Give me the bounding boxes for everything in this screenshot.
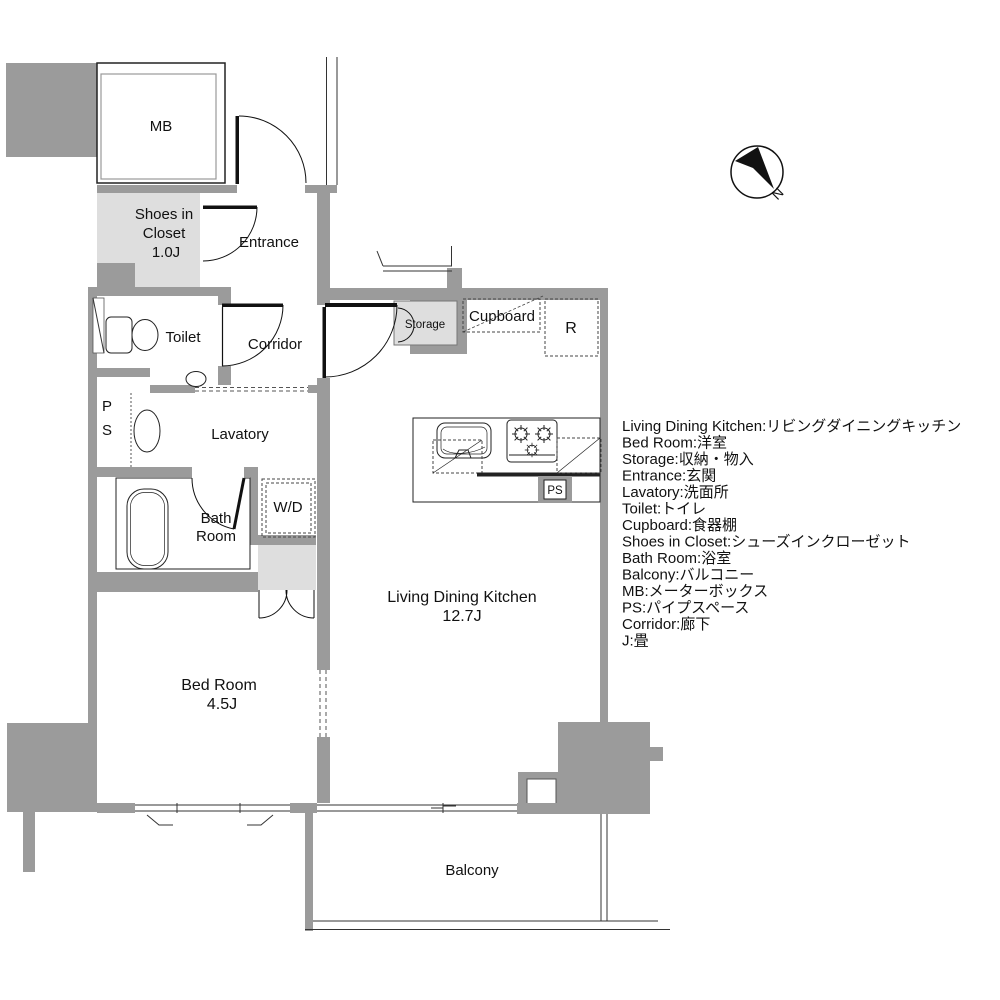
toilet-label: Toilet [165, 329, 201, 346]
wall-segment [317, 378, 330, 393]
legend-line: Toilet:トイレ [622, 501, 706, 518]
shoes-closet-label-3: 1.0J [152, 244, 180, 261]
vent-line [377, 251, 383, 266]
vanity-sink [134, 410, 160, 452]
shoes-closet-door-leaf [203, 206, 257, 210]
wall-segment [150, 385, 195, 393]
bedroom-label-1: Bed Room [181, 677, 257, 694]
floor-plan: N MB Shoes in Closet 1.0J Entrance Toile… [0, 0, 1000, 1000]
balcony-label: Balcony [445, 862, 499, 879]
window-shutter-mark [147, 815, 173, 825]
bedroom-closet-area [258, 545, 316, 590]
entrance-door-leaf [236, 116, 240, 184]
toilet-bowl [132, 320, 158, 351]
wall-segment [517, 803, 560, 814]
wall-segment [317, 393, 330, 670]
legend-line: Bed Room:洋室 [622, 435, 727, 452]
wall-segment [650, 747, 663, 761]
bathtub [127, 489, 168, 569]
wall-segment [308, 385, 317, 393]
corridor-label: Corridor [248, 336, 302, 353]
wall-segment [244, 467, 258, 477]
legend-line: PS:パイプスペース [622, 600, 749, 617]
ldk-door-leaf [325, 303, 397, 307]
wall-segment [250, 477, 258, 545]
ldk-label-1: Living Dining Kitchen [387, 589, 536, 606]
legend-line: J:畳 [622, 633, 649, 650]
wall-segment [88, 572, 258, 592]
legend-line: Balcony:バルコニー [622, 567, 754, 584]
toilet-tank [106, 317, 132, 353]
balcony-side-wall [305, 813, 313, 931]
legend-line: Shoes in Closet:シューズインクローゼット [622, 534, 910, 551]
wall-segment [317, 185, 330, 305]
wall-niche [527, 779, 556, 806]
wall-segment [600, 288, 608, 722]
wall-segment [97, 803, 135, 813]
legend-line: Storage:収納・物入 [622, 451, 754, 468]
wall-segment [7, 723, 97, 872]
shoes-closet-label-1: Shoes in [135, 206, 193, 223]
wall-segment [290, 803, 317, 813]
hand-sink [186, 372, 206, 387]
ps-left-label-2: S [102, 422, 112, 439]
legend: Living Dining Kitchen:リビングダイニングキッチン Bed … [622, 418, 961, 650]
legend-line: Living Dining Kitchen:リビングダイニングキッチン [622, 418, 961, 435]
bedroom-label-2: 4.5J [207, 696, 237, 713]
wall-segment [97, 263, 135, 290]
cupboard-label: Cupboard [469, 308, 535, 325]
column-block [558, 722, 650, 814]
bath-door-leaf [234, 478, 244, 529]
ldk-label-2: 12.7J [442, 608, 481, 625]
legend-line: Entrance:玄関 [622, 468, 716, 485]
legend-line: Cupboard:食器棚 [622, 517, 737, 534]
wall-segment [327, 288, 608, 300]
kitchen-ps-label: PS [547, 485, 563, 497]
ldk-door-closed-line [323, 307, 327, 378]
lavatory-label: Lavatory [211, 426, 269, 443]
bath-label-1: Bath [201, 510, 232, 527]
window-shutter-mark [247, 815, 273, 825]
compass: N [731, 146, 787, 203]
closet-door-arc [286, 590, 314, 618]
wall-segment [88, 467, 192, 477]
entrance-door-arc [239, 116, 306, 183]
closet-door-arc [259, 590, 287, 618]
ps-left-label-1: P [102, 398, 112, 415]
wall-segment [6, 63, 97, 157]
shoes-closet-label-2: Closet [143, 225, 186, 242]
lavatory-slider [195, 385, 308, 393]
wall-segment [88, 368, 150, 377]
floor-plan-svg: N MB Shoes in Closet 1.0J Entrance Toile… [0, 0, 1000, 1000]
legend-line: Bath Room:浴室 [622, 550, 731, 567]
legend-line: MB:メーターボックス [622, 583, 768, 600]
bedroom-partition [317, 670, 330, 737]
legend-line: Corridor:廊下 [622, 616, 710, 633]
mb-label: MB [150, 118, 173, 135]
ldk-door-arc [325, 305, 397, 377]
wall-segment [317, 737, 330, 803]
wall-segment [97, 185, 237, 193]
entrance-label: Entrance [239, 234, 299, 251]
legend-line: Lavatory:洗面所 [622, 484, 729, 501]
refrigerator-label: R [565, 320, 577, 337]
bath-label-2: Room [196, 528, 236, 545]
storage-label: Storage [405, 319, 445, 331]
toilet-door-leaf [222, 304, 283, 308]
wall-segment [218, 287, 231, 305]
wd-label: W/D [273, 499, 302, 516]
